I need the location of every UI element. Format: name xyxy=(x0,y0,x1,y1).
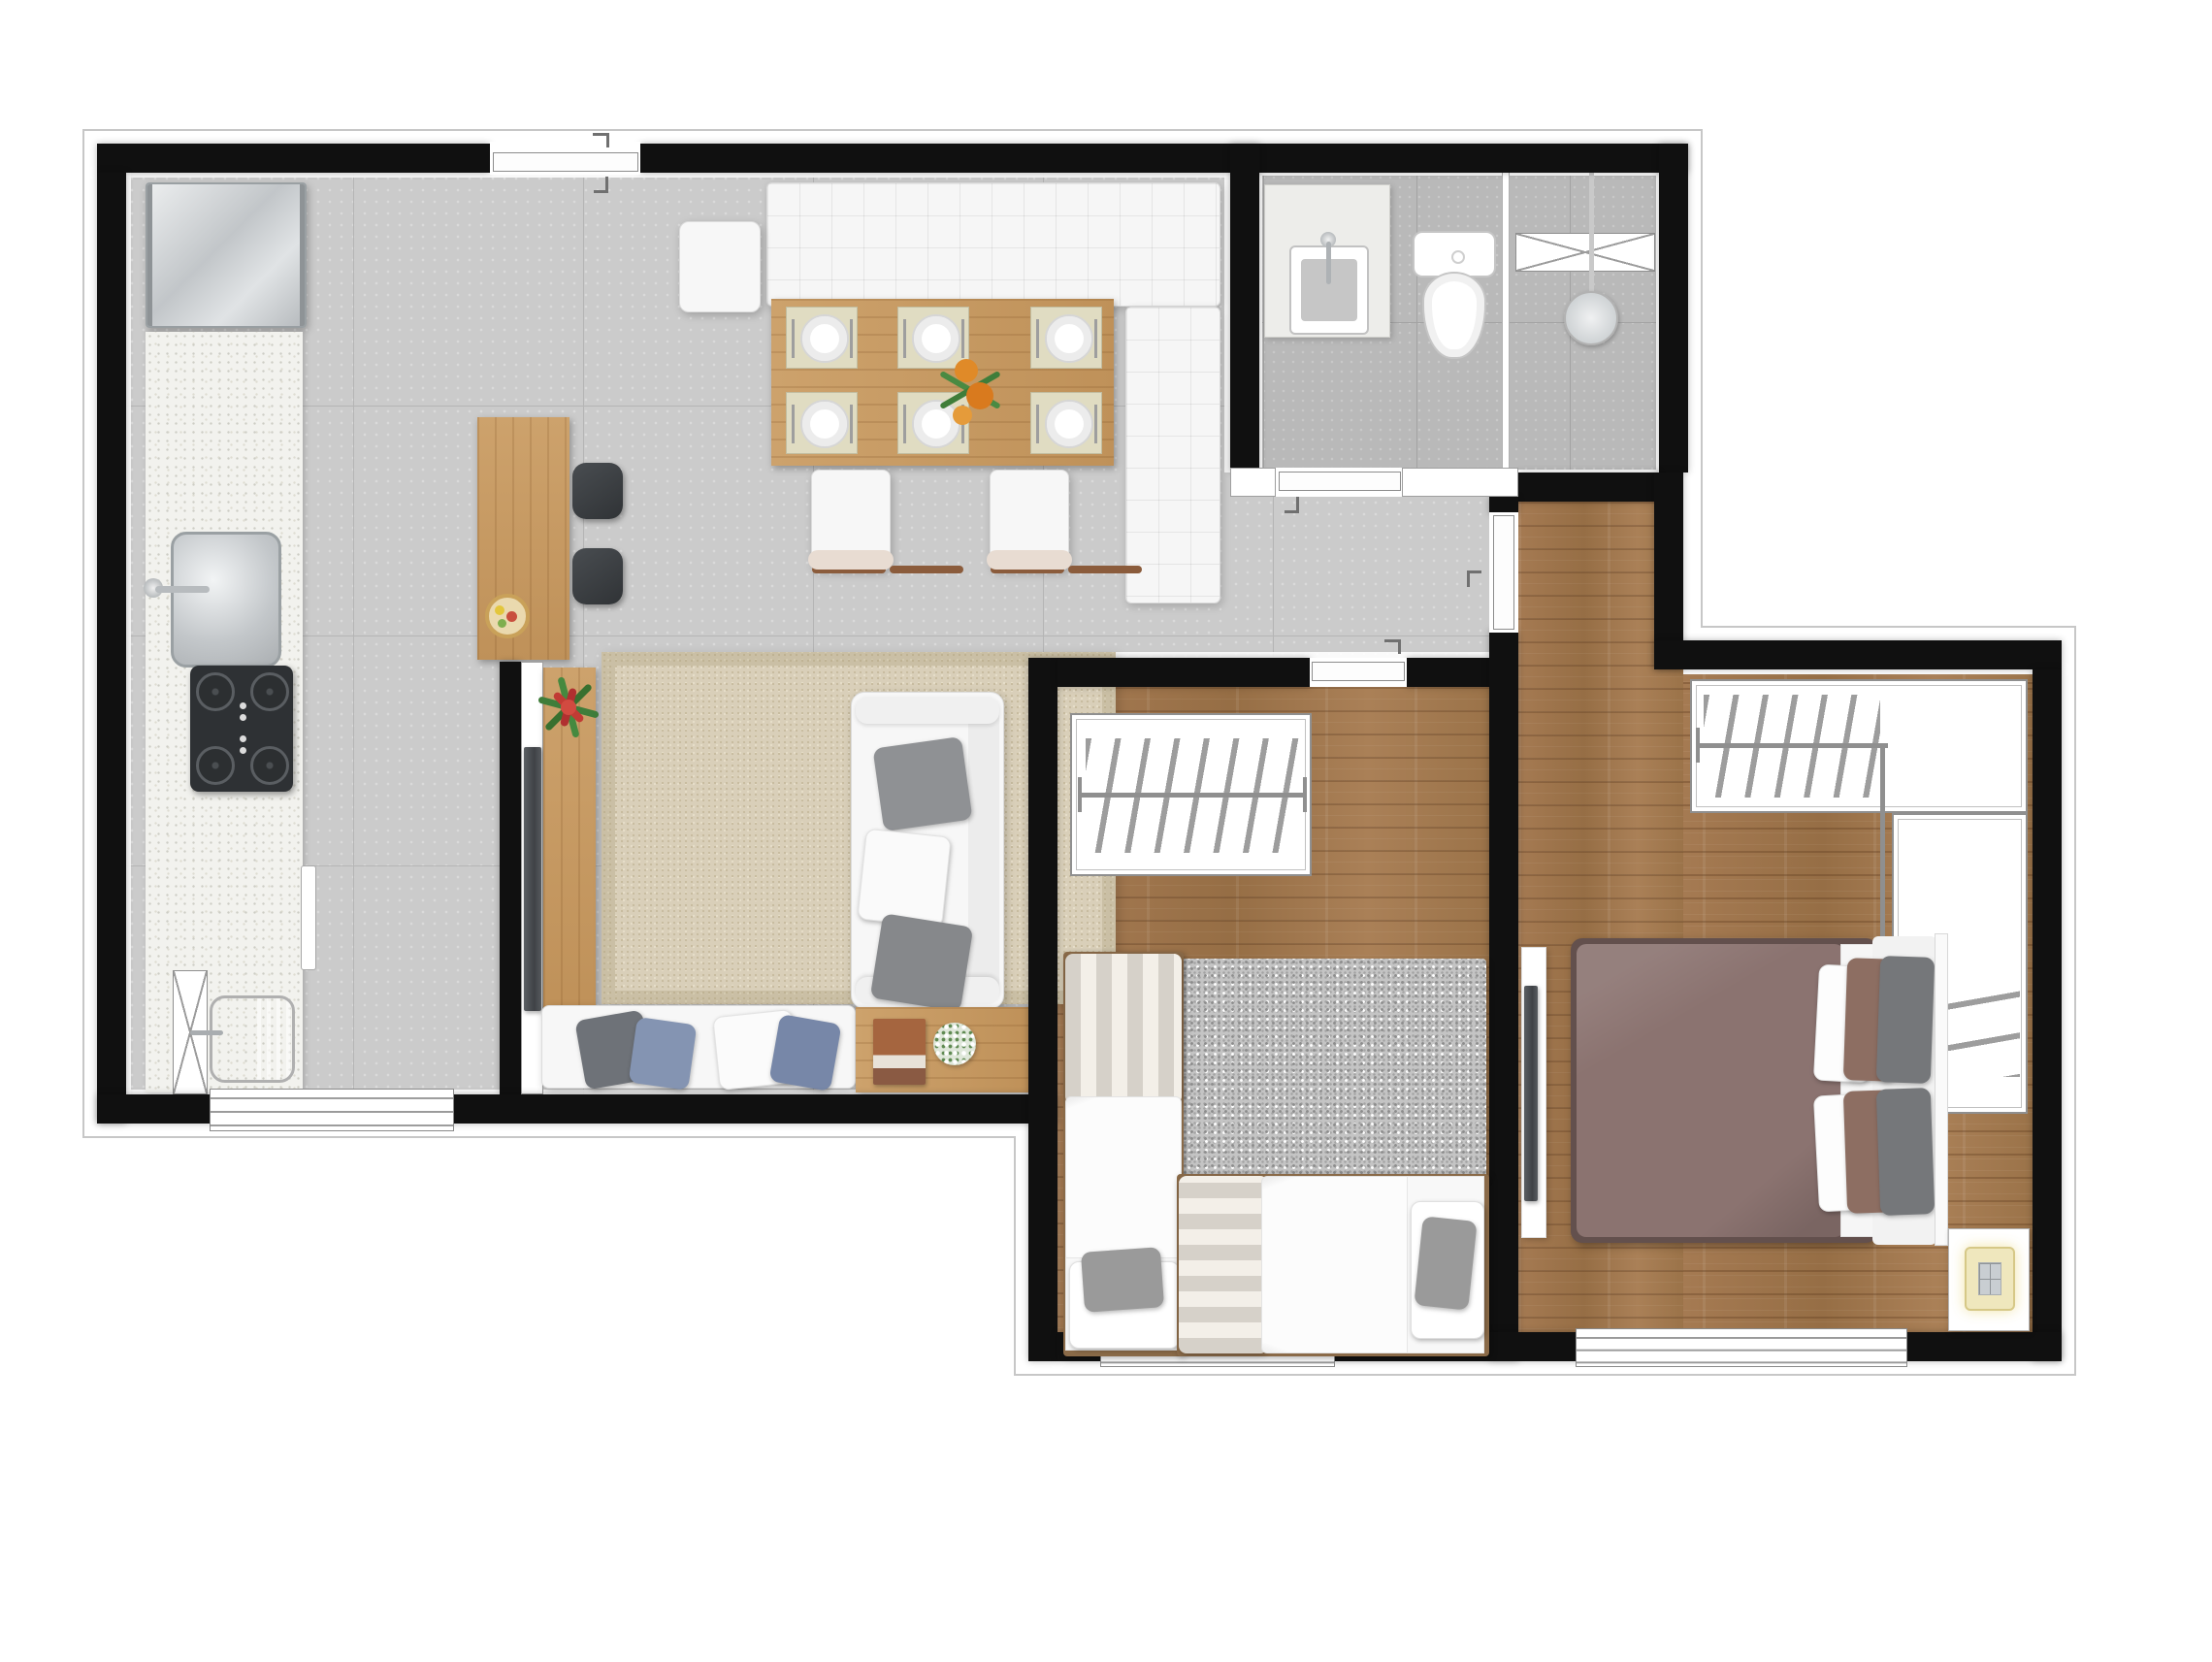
kitchen-faucet-spout xyxy=(155,586,210,593)
bench-pillow xyxy=(629,1017,698,1091)
fork-icon xyxy=(792,405,795,443)
vanity xyxy=(1264,184,1390,338)
bed-duvet xyxy=(1065,1096,1182,1266)
fruit-bowl xyxy=(485,594,530,638)
entry-door xyxy=(493,152,638,172)
plate-icon xyxy=(1045,400,1093,448)
plate-icon xyxy=(800,314,849,363)
shower-divider xyxy=(1502,173,1510,473)
sofa-back xyxy=(968,699,999,1002)
closet-rail xyxy=(1698,743,1888,748)
corner-bench-right xyxy=(1125,307,1220,603)
burner-icon xyxy=(250,672,289,711)
fork-icon xyxy=(903,405,906,443)
bed-duvet xyxy=(1261,1176,1415,1353)
corner-bench-top xyxy=(766,182,1220,307)
place-setting xyxy=(786,392,858,454)
wall-bath-bottom-b xyxy=(1402,468,1518,497)
knife-icon xyxy=(850,405,853,443)
bedroom2-door xyxy=(1493,515,1514,630)
sofa-pillow xyxy=(857,829,951,929)
dining-chair xyxy=(679,221,761,312)
wall-bottom-living xyxy=(448,1094,1057,1124)
knob-icon xyxy=(240,747,246,754)
wall-bath-bottom-a xyxy=(1230,468,1276,497)
bed-pillow xyxy=(1414,1216,1477,1310)
glass-shelf xyxy=(1515,233,1655,272)
bed-pillow xyxy=(1081,1247,1164,1313)
knife-icon xyxy=(1094,405,1097,443)
fork-icon xyxy=(1036,319,1039,358)
tv-half-wall xyxy=(500,662,521,1094)
book xyxy=(873,1019,926,1085)
place-setting xyxy=(1030,307,1102,369)
wall-bath-right xyxy=(1659,144,1688,473)
laundry-faucet-icon xyxy=(190,1030,223,1035)
wall-bedroom2-top xyxy=(1654,640,2062,669)
door-handle-icon xyxy=(1384,639,1401,654)
service-window xyxy=(210,1089,454,1131)
wall-bedroom1-top-a xyxy=(1057,658,1310,687)
bar-stool xyxy=(572,548,623,604)
wall-bedroom1-left xyxy=(1028,658,1057,1361)
bedroom1-wardrobe xyxy=(1070,713,1312,876)
rail-cap xyxy=(1078,777,1082,812)
bed-pillow xyxy=(1876,1088,1935,1216)
door-handle-icon xyxy=(1467,570,1481,587)
fridge xyxy=(146,182,307,328)
shower-head xyxy=(1564,291,1618,345)
wall-left xyxy=(97,173,126,1124)
bar-stool xyxy=(572,463,623,519)
nightstand xyxy=(1948,1228,2030,1331)
closet-rail xyxy=(1080,793,1306,798)
flower-icon xyxy=(561,700,576,715)
fork-icon xyxy=(1036,405,1039,443)
wall-face xyxy=(126,173,131,1094)
wall-bedrooms-divider-b xyxy=(1489,631,1518,1361)
plate-icon xyxy=(1045,314,1093,363)
rail-cap xyxy=(1696,728,1700,763)
knob-icon xyxy=(240,714,246,721)
bed-pillow xyxy=(1876,956,1935,1084)
place-setting xyxy=(1030,392,1102,454)
tv-living xyxy=(524,747,541,1011)
sofa-pillow xyxy=(870,913,974,1012)
wall-face xyxy=(126,173,1230,178)
burner-icon xyxy=(250,746,289,785)
double-bed xyxy=(1577,944,1844,1237)
bedroom1-door xyxy=(1312,662,1405,681)
floor-hall xyxy=(1230,497,1489,658)
bathroom-door xyxy=(1279,472,1401,491)
wall-bedroom2-right xyxy=(2033,669,2062,1361)
chair-cushion xyxy=(808,550,894,570)
place-setting xyxy=(786,307,858,369)
bed-blanket xyxy=(1179,1176,1268,1353)
fruit-icon xyxy=(498,619,506,628)
lamp-top xyxy=(1978,1262,2001,1295)
fork-icon xyxy=(903,319,906,358)
wall-bedroom1-top-b xyxy=(1407,658,1489,687)
door-handle-icon xyxy=(1285,497,1299,513)
knife-icon xyxy=(850,319,853,358)
red-plant xyxy=(539,673,598,741)
rail-cap xyxy=(1303,777,1307,812)
dining-chair xyxy=(990,470,1069,570)
centerpiece xyxy=(939,342,1001,439)
sofa-pillow xyxy=(872,736,972,831)
cooktop xyxy=(190,666,293,792)
door-handle-icon xyxy=(594,177,608,193)
wall-bath-divider xyxy=(1230,144,1259,473)
white-plant xyxy=(933,1023,976,1065)
laundry-tub xyxy=(210,995,295,1083)
wall-under-shower xyxy=(1518,473,1659,502)
kitchen-sink xyxy=(171,532,281,668)
burner-icon xyxy=(196,746,235,785)
flower-icon xyxy=(953,406,972,425)
headboard xyxy=(1935,933,1948,1246)
wall-bottom-service-a xyxy=(97,1094,215,1124)
plate-icon xyxy=(800,400,849,448)
oven-handle xyxy=(301,865,316,970)
shag-rug xyxy=(1182,959,1486,1178)
lamp-icon xyxy=(1965,1247,2015,1311)
door-handle-icon xyxy=(593,133,609,147)
faucet-icon xyxy=(1326,242,1331,284)
knife-icon xyxy=(1094,319,1097,358)
floor-plan xyxy=(0,0,2212,1662)
wall-bottom-b2 xyxy=(1902,1332,2062,1361)
bedroom2-window xyxy=(1576,1328,1907,1367)
bed-blanket xyxy=(1065,954,1182,1104)
chair-cushion xyxy=(987,550,1072,570)
fruit-icon xyxy=(495,605,504,615)
closet-rail-corner xyxy=(1880,743,1885,815)
flower-icon xyxy=(966,382,993,409)
sofa-arm xyxy=(856,697,999,724)
dining-chair xyxy=(811,470,891,570)
shower-arm xyxy=(1589,173,1594,299)
wall-top-left xyxy=(97,144,490,173)
knob-icon xyxy=(240,702,246,709)
wall-top-right xyxy=(640,144,1688,173)
flush-button-icon xyxy=(1451,250,1465,264)
fruit-icon xyxy=(506,611,517,622)
burner-icon xyxy=(196,672,235,711)
fork-icon xyxy=(792,319,795,358)
bedroom2-tv xyxy=(1524,986,1538,1201)
bench-pillow xyxy=(768,1014,841,1092)
bedroom2-closet-top xyxy=(1690,679,2028,813)
toilet-tank xyxy=(1413,231,1496,277)
flower-icon xyxy=(955,359,978,382)
knob-icon xyxy=(240,735,246,742)
